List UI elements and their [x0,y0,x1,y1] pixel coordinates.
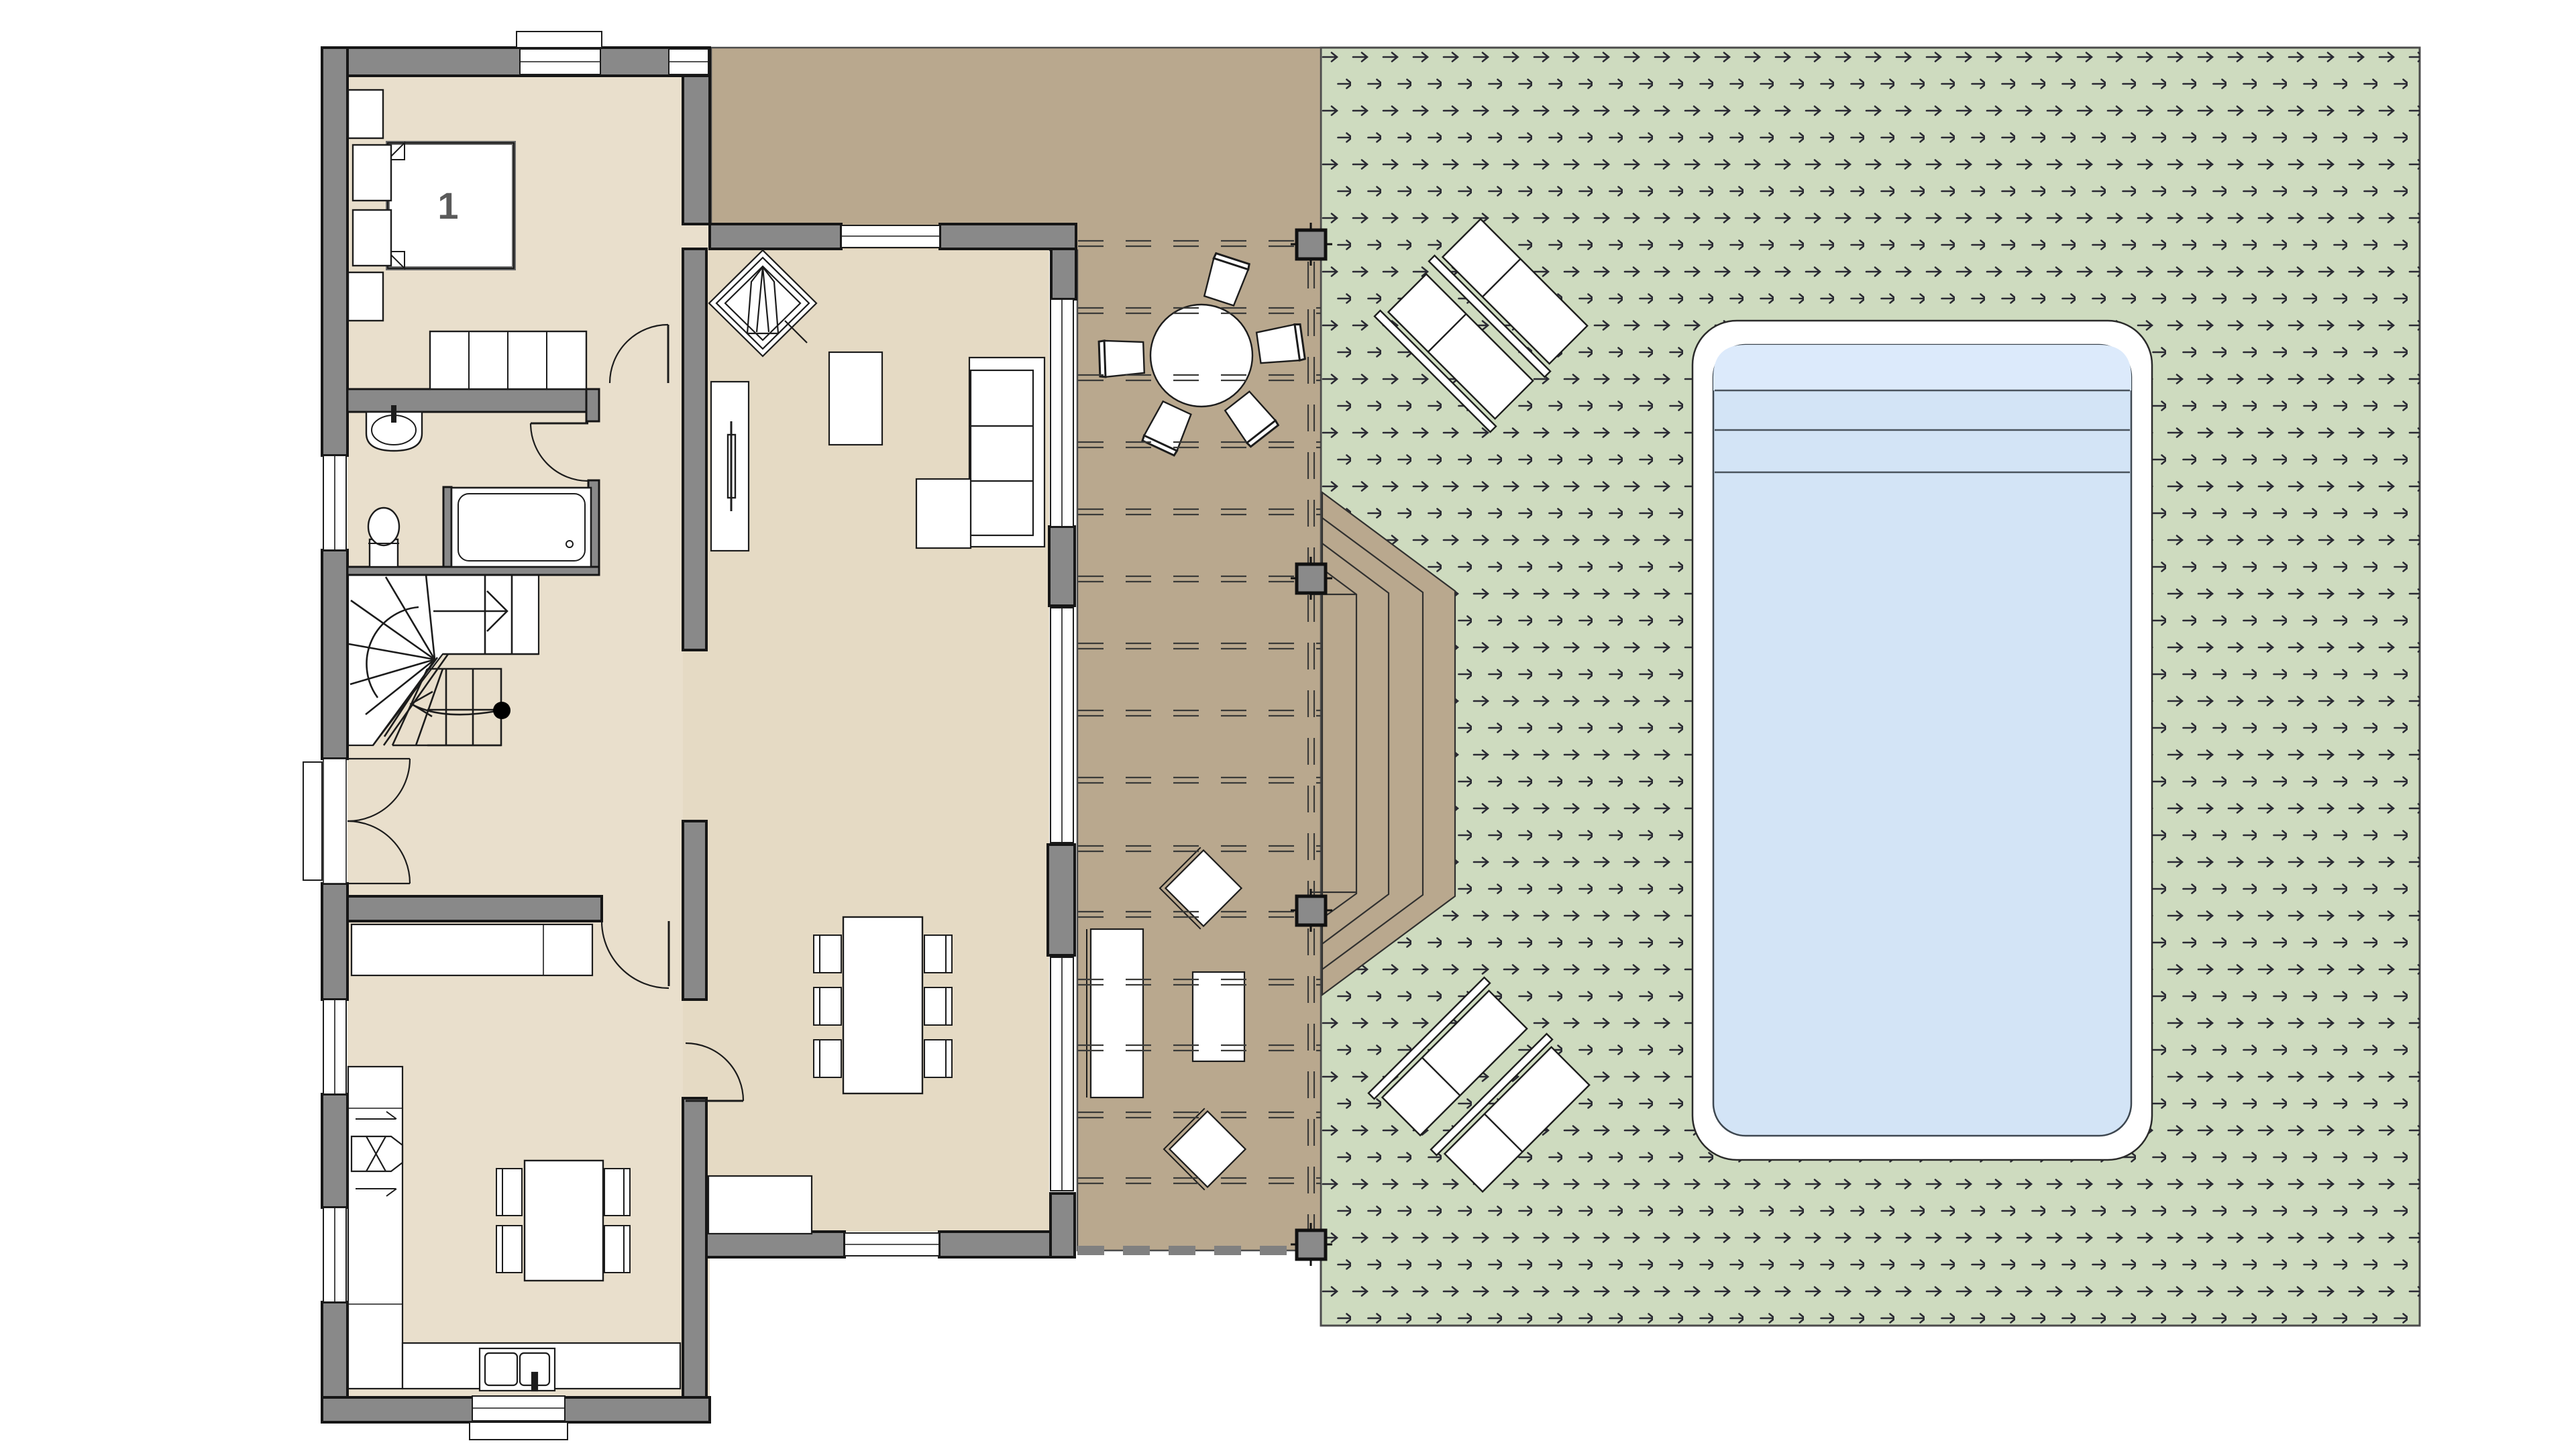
svg-text:1: 1 [437,184,458,227]
